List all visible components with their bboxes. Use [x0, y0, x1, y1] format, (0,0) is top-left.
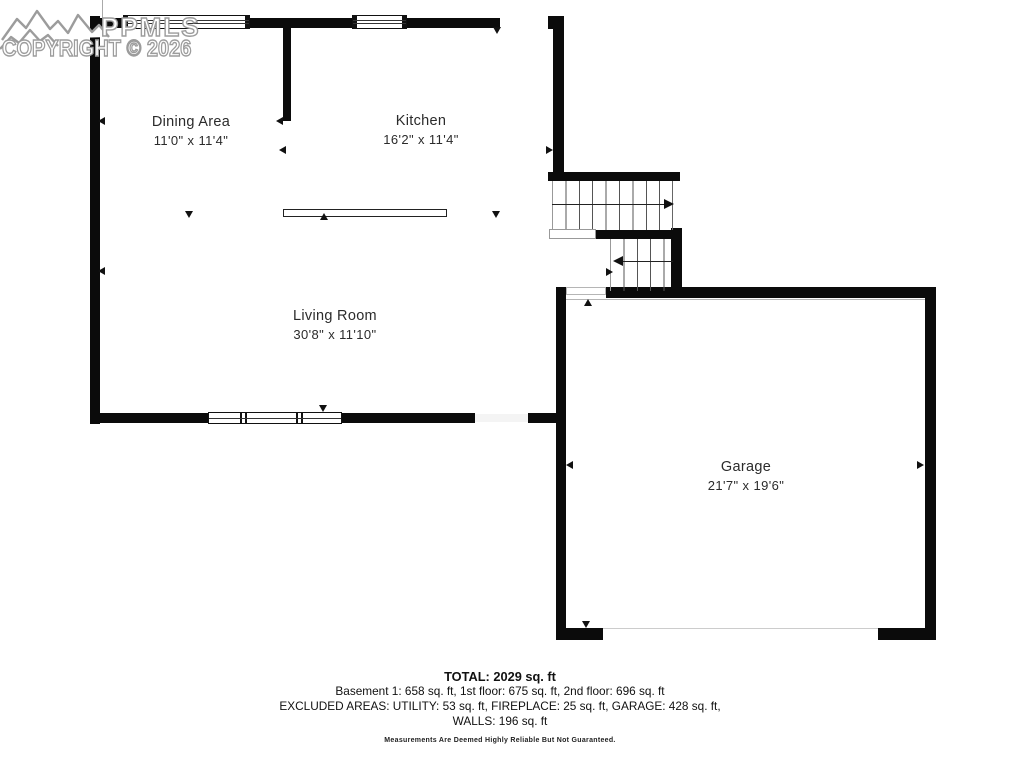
wall-bottom-segment-b — [342, 413, 475, 423]
room-name: Dining Area — [152, 114, 230, 130]
stair-direction-arrow-up-icon — [664, 199, 674, 209]
summary-disclaimer: Measurements Are Deemed Highly Reliable … — [0, 737, 1000, 744]
room-dimensions: 21'7" x 19'6" — [708, 478, 785, 493]
wall-top-segment-b — [250, 18, 352, 28]
wall-garage-bottom-right-stub — [878, 628, 936, 640]
door-opening-bottom — [475, 414, 528, 422]
wall-garage-left — [556, 287, 566, 640]
wall-stair-mid — [595, 230, 680, 239]
stair-landing — [549, 229, 596, 239]
kitchen-counter — [283, 209, 447, 217]
area-summary: TOTAL: 2029 sq. ft Basement 1: 658 sq. f… — [0, 669, 1000, 744]
stair-direction-arrow-down-icon — [613, 256, 623, 266]
wall-garage-right — [925, 287, 936, 640]
tick-icon — [582, 621, 590, 628]
wall-right-upper — [553, 16, 564, 181]
summary-floors: Basement 1: 658 sq. ft, 1st floor: 675 s… — [0, 684, 1000, 699]
tick-icon — [98, 267, 105, 275]
room-dimensions: 30'8" x 11'10" — [293, 327, 377, 342]
room-dimensions: 16'2" x 11'4" — [383, 132, 459, 147]
room-label-dining: Dining Area 11'0" x 11'4" — [152, 114, 230, 148]
room-name: Kitchen — [383, 113, 459, 129]
tick-icon — [546, 146, 553, 154]
staircase-upper-run — [552, 181, 673, 230]
wall-dining-kitchen-divider — [283, 28, 291, 121]
tick-icon — [492, 211, 500, 218]
garage-door-line — [603, 628, 878, 629]
summary-excluded: EXCLUDED AREAS: UTILITY: 53 sq. ft, FIRE… — [0, 699, 1000, 714]
tick-icon — [566, 461, 573, 469]
wall-top-segment-c — [407, 18, 500, 28]
window-bottom-living — [208, 412, 342, 424]
tick-icon — [319, 405, 327, 412]
tick-icon — [584, 299, 592, 306]
room-label-garage: Garage 21'7" x 19'6" — [708, 459, 785, 493]
tick-icon — [276, 117, 283, 125]
floorplan-canvas: Dining Area 11'0" x 11'4" Kitchen 16'2" … — [0, 0, 1024, 767]
tick-icon — [185, 211, 193, 218]
tick-icon — [279, 146, 286, 154]
tick-icon — [493, 27, 501, 34]
watermark: PPMLS COPYRIGHT © 2026 — [0, 0, 230, 75]
wall-bottom-segment-a — [90, 413, 208, 423]
wall-stair-top — [548, 172, 680, 181]
tick-icon — [98, 117, 105, 125]
stair-direction-line-down — [622, 261, 673, 262]
wall-garage-bottom-left-stub — [556, 628, 603, 640]
summary-walls: WALLS: 196 sq. ft — [0, 714, 1000, 729]
room-dimensions: 11'0" x 11'4" — [152, 133, 230, 148]
watermark-copyright: COPYRIGHT © 2026 — [2, 35, 191, 62]
tick-icon — [606, 268, 613, 276]
room-label-living: Living Room 30'8" x 11'10" — [293, 308, 377, 342]
summary-total: TOTAL: 2029 sq. ft — [0, 669, 1000, 684]
tick-icon — [917, 461, 924, 469]
room-name: Garage — [708, 459, 785, 475]
room-label-kitchen: Kitchen 16'2" x 11'4" — [383, 113, 459, 147]
window-top-kitchen — [352, 15, 407, 29]
wall-left-exterior — [90, 16, 100, 424]
stair-direction-line-up — [552, 204, 666, 205]
door-opening-garage — [566, 287, 606, 295]
tick-icon — [320, 213, 328, 220]
garage-interior-line — [566, 299, 925, 300]
wall-bottom-segment-c — [528, 413, 556, 423]
room-name: Living Room — [293, 308, 377, 324]
